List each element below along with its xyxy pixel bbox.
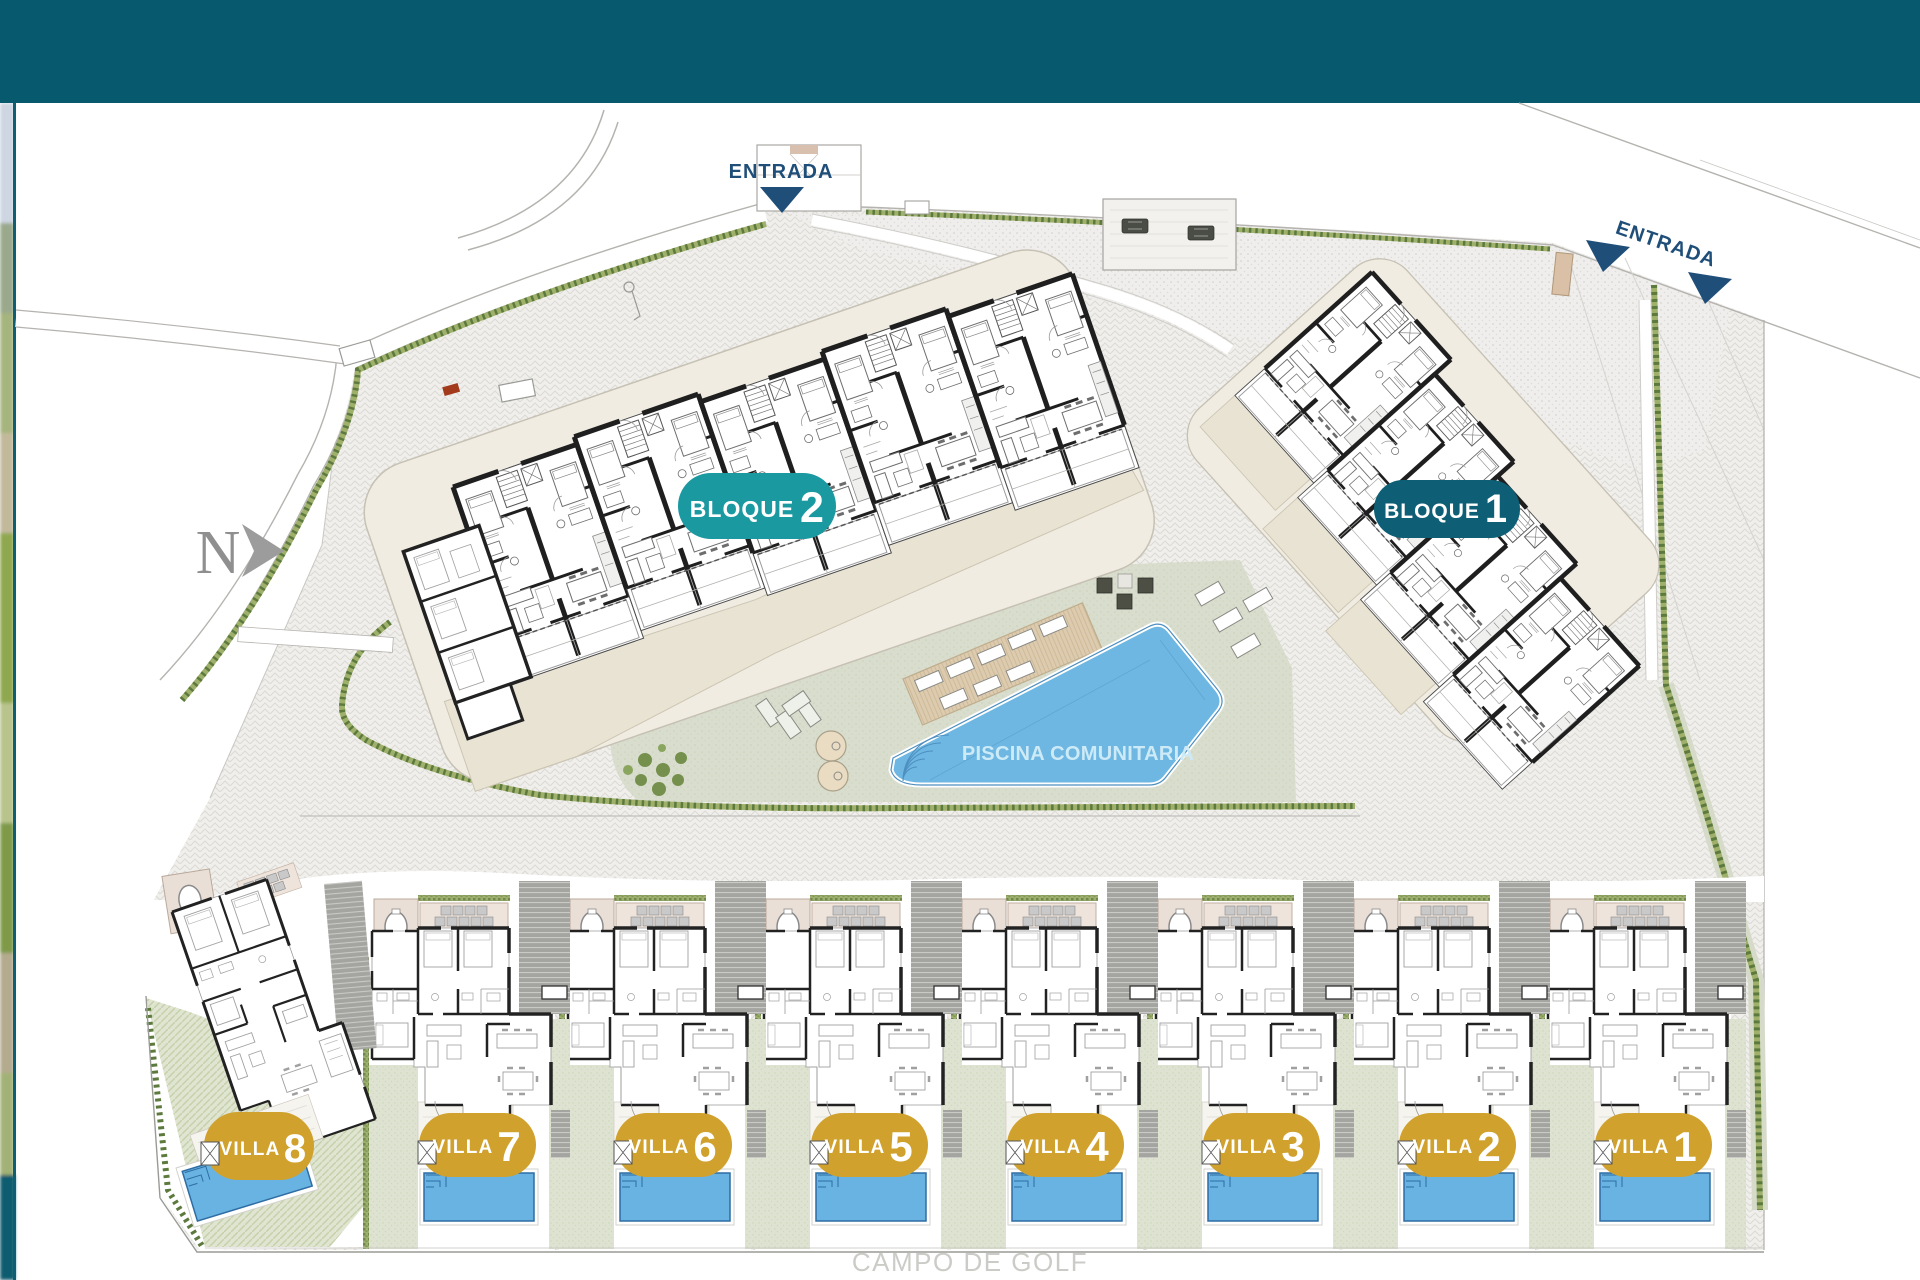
svg-text:CAMPO DE GOLF: CAMPO DE GOLF	[852, 1247, 1088, 1277]
svg-text:2: 2	[800, 484, 824, 532]
svg-text:4: 4	[1085, 1123, 1109, 1170]
svg-text:PISCINA COMUNITARIA: PISCINA COMUNITARIA	[962, 743, 1194, 765]
svg-text:7: 7	[497, 1123, 520, 1170]
svg-text:6: 6	[693, 1123, 716, 1170]
svg-text:VILLA: VILLA	[220, 1139, 281, 1160]
svg-text:BLOQUE: BLOQUE	[1384, 500, 1480, 523]
svg-text:5: 5	[889, 1123, 912, 1170]
svg-text:3: 3	[1281, 1123, 1304, 1170]
svg-text:1: 1	[1485, 487, 1507, 531]
svg-text:BLOQUE: BLOQUE	[690, 496, 794, 522]
svg-text:ENTRADA: ENTRADA	[729, 161, 834, 183]
svg-text:1: 1	[1673, 1123, 1696, 1170]
svg-text:2: 2	[1477, 1123, 1500, 1170]
svg-text:8: 8	[284, 1127, 306, 1171]
svg-text:N: N	[196, 519, 241, 587]
